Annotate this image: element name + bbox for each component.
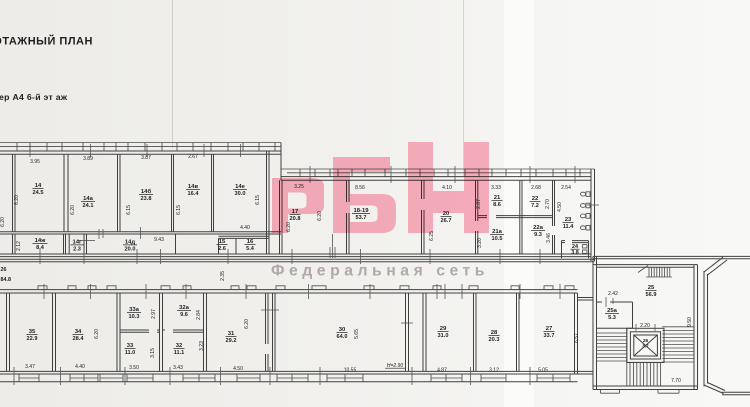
svg-text:ер А4 6-й эт аж: ер А4 6-й эт аж (0, 92, 68, 102)
svg-text:8.4: 8.4 (36, 245, 45, 251)
svg-text:29.2: 29.2 (226, 338, 237, 344)
svg-text:20.8: 20.8 (290, 216, 301, 222)
svg-text:6.20: 6.20 (14, 195, 20, 205)
svg-text:6.20: 6.20 (244, 319, 250, 329)
svg-text:3.8: 3.8 (571, 250, 579, 256)
svg-text:10.55: 10.55 (344, 368, 357, 374)
svg-text:3.89: 3.89 (83, 156, 93, 162)
svg-text:4.40: 4.40 (240, 225, 250, 231)
svg-text:3.23: 3.23 (199, 341, 205, 351)
svg-text:11.0: 11.0 (125, 350, 136, 356)
svg-text:16.4: 16.4 (188, 191, 200, 197)
svg-text:9.43: 9.43 (154, 237, 164, 243)
svg-text:33.7: 33.7 (544, 333, 555, 339)
svg-text:31.0: 31.0 (438, 333, 449, 339)
svg-text:5.3: 5.3 (608, 315, 616, 321)
svg-text:8.6: 8.6 (493, 202, 501, 208)
svg-text:24.5: 24.5 (33, 190, 44, 196)
svg-text:3.87: 3.87 (141, 155, 151, 161)
svg-text:10.3: 10.3 (129, 314, 140, 320)
svg-text:6.15: 6.15 (255, 195, 261, 205)
svg-text:7.2: 7.2 (531, 203, 539, 209)
svg-text:14б: 14б (141, 188, 152, 195)
svg-text:2.35: 2.35 (220, 271, 226, 281)
svg-text:3.43: 3.43 (173, 365, 183, 371)
svg-text:4.10: 4.10 (442, 185, 452, 191)
svg-text:2.42: 2.42 (608, 291, 618, 297)
svg-text:28.4: 28.4 (73, 336, 85, 342)
svg-text:24.1: 24.1 (83, 203, 94, 209)
svg-text:Федеральная сеть: Федеральная сеть (271, 263, 489, 280)
svg-text:6.20: 6.20 (70, 205, 76, 215)
svg-text:7.70: 7.70 (671, 378, 681, 384)
svg-text:2.3: 2.3 (73, 247, 81, 253)
svg-text:5.65: 5.65 (354, 329, 360, 339)
svg-text:23.8: 23.8 (141, 196, 152, 202)
svg-text:3.47: 3.47 (25, 364, 35, 370)
svg-text:3.12: 3.12 (489, 368, 499, 374)
svg-text:11.4: 11.4 (563, 224, 574, 230)
svg-text:4.50: 4.50 (557, 202, 563, 212)
svg-text:11.1: 11.1 (174, 350, 185, 356)
svg-text:10.5: 10.5 (492, 236, 503, 242)
svg-text:3.50: 3.50 (129, 365, 139, 371)
svg-text:3.95: 3.95 (30, 159, 40, 165)
svg-text:5.4: 5.4 (246, 246, 255, 252)
svg-text:2.68: 2.68 (531, 185, 541, 191)
svg-text:4.40: 4.40 (75, 364, 85, 370)
svg-text:6.20: 6.20 (0, 217, 6, 227)
svg-text:8.56: 8.56 (355, 185, 365, 191)
svg-text:9.50: 9.50 (687, 317, 693, 327)
svg-text:20.0: 20.0 (125, 247, 136, 253)
svg-text:26: 26 (1, 267, 7, 273)
svg-text:26.7: 26.7 (441, 218, 452, 224)
svg-text:4.87: 4.87 (437, 368, 447, 374)
svg-text:5.05: 5.05 (538, 368, 548, 374)
svg-text:2.67: 2.67 (188, 154, 198, 160)
svg-text:2.70: 2.70 (545, 199, 551, 209)
svg-text:56.9: 56.9 (646, 292, 657, 298)
svg-text:6.15: 6.15 (176, 205, 182, 215)
svg-text:3.46: 3.46 (546, 233, 552, 243)
svg-text:3.33: 3.33 (491, 185, 501, 191)
svg-text:2.84: 2.84 (196, 310, 202, 320)
svg-text:3.7: 3.7 (642, 344, 649, 349)
svg-text:3.15: 3.15 (150, 348, 156, 358)
svg-text:84.8: 84.8 (1, 277, 12, 283)
svg-text:9.6: 9.6 (180, 312, 188, 318)
svg-text:6.57: 6.57 (574, 333, 580, 343)
svg-text:6.20: 6.20 (94, 329, 100, 339)
svg-text:2.97: 2.97 (151, 309, 157, 319)
svg-text:22.9: 22.9 (27, 336, 38, 342)
svg-text:53.7: 53.7 (356, 215, 367, 221)
svg-text:9.3: 9.3 (534, 232, 542, 238)
svg-text:ЭТАЖНЫЙ ПЛАН: ЭТАЖНЫЙ ПЛАН (0, 35, 93, 48)
svg-text:30.0: 30.0 (235, 191, 246, 197)
svg-text:2.12: 2.12 (16, 241, 22, 251)
svg-text:2.20: 2.20 (640, 323, 650, 329)
svg-text:4.50: 4.50 (233, 366, 243, 372)
svg-text:3.20: 3.20 (477, 238, 483, 248)
svg-text:64.0: 64.0 (337, 334, 348, 340)
svg-text:20.3: 20.3 (489, 337, 500, 343)
svg-text:2.54: 2.54 (561, 185, 571, 191)
svg-text:2.6: 2.6 (218, 246, 226, 252)
svg-text:6.15: 6.15 (126, 205, 132, 215)
